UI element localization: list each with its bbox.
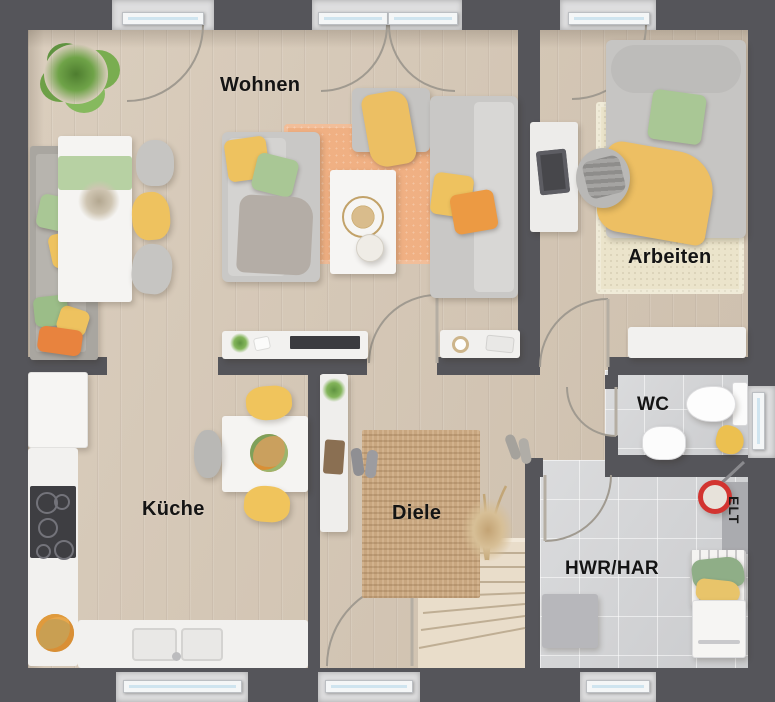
cabinet-items [323,439,345,474]
pillow [647,88,707,145]
terrace-door-window [122,12,204,25]
arbeiten-door-window [568,12,650,25]
kitchen-window [123,680,242,693]
daybed-bolster [611,45,741,93]
outer-wall-right [748,0,775,702]
sofa-blanket [236,194,314,276]
entrance-door [325,680,413,693]
wall-arbeiten-bottom [608,357,748,375]
room-label-wohnen: Wohnen [220,74,300,97]
tv [290,336,360,349]
outer-wall-left [0,0,28,702]
vase-pampas [356,234,384,262]
room-label-kueche: Küche [142,498,205,521]
room-label-elt: ELT [726,496,742,524]
toilet [686,386,736,422]
wall-wohnen-kueche-b [218,357,367,375]
wall-kueche-diele [308,375,320,668]
washing-machine-panel [698,640,740,644]
kitchen-sink-basin [181,628,223,661]
fruit-bowl [36,614,74,652]
wall-hwr-left [525,477,540,668]
storage-box [542,594,598,648]
shelf-items [485,335,515,354]
rattan-tray [342,196,384,238]
kitchen-chair [243,484,291,523]
dried-plant [462,498,514,562]
faucet [172,652,181,661]
floorplan-canvas: Wohnen Arbeiten Küche Diele WC HWR/HAR E… [0,0,775,702]
room-label-diele: Diele [392,502,441,525]
french-door-window-left [318,12,388,25]
stool [194,430,222,478]
pillow [449,188,499,235]
kitchen-sink-basin [132,628,177,661]
corner-plant [44,44,108,104]
burner [54,494,70,510]
room-label-wc: WC [637,394,669,416]
salad-bowl [250,434,288,472]
room-label-hwr-har: HWR/HAR [565,558,659,580]
wall-wc-left-stub-top [605,375,618,389]
sideboard-plant [230,333,250,353]
wc-sink [642,426,686,460]
burner [36,544,51,559]
cabinet-plant [322,378,346,402]
dining-chair [136,140,174,186]
burner [54,540,74,560]
candle [452,336,469,353]
room-label-arbeiten: Arbeiten [628,246,712,269]
work-sideboard [628,327,746,358]
wc-window [752,392,765,450]
washing-machine [692,600,746,658]
laptop [536,149,570,196]
kitchen-tall-cabinet [28,372,88,448]
french-door-window-right [388,12,458,25]
table-centerpiece [78,180,120,222]
hwr-window [586,680,650,693]
burner [38,518,58,538]
